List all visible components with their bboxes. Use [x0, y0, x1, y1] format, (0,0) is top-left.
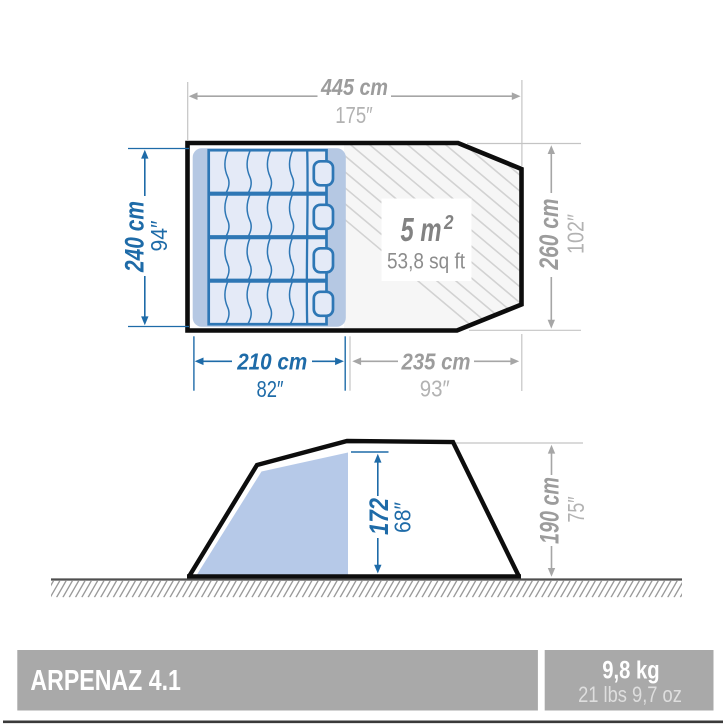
- svg-text:175″: 175″: [335, 102, 373, 128]
- svg-text:190 cm: 190 cm: [535, 477, 565, 544]
- svg-text:2: 2: [443, 212, 453, 234]
- svg-text:9,8 kg: 9,8 kg: [602, 657, 659, 685]
- svg-text:445 cm: 445 cm: [320, 74, 388, 100]
- svg-text:53,8 sq ft: 53,8 sq ft: [387, 249, 466, 274]
- svg-text:235 cm: 235 cm: [401, 348, 471, 374]
- svg-text:93″: 93″: [420, 375, 450, 401]
- svg-text:75″: 75″: [563, 497, 589, 523]
- svg-text:102″: 102″: [563, 214, 589, 254]
- svg-text:68″: 68″: [390, 502, 416, 533]
- svg-text:21 lbs 9,7 oz: 21 lbs 9,7 oz: [578, 682, 682, 707]
- svg-text:82″: 82″: [257, 376, 284, 402]
- svg-text:ARPENAZ 4.1: ARPENAZ 4.1: [30, 665, 181, 697]
- svg-text:5 m: 5 m: [401, 211, 442, 248]
- svg-text:210 cm: 210 cm: [236, 348, 307, 374]
- svg-text:260 cm: 260 cm: [534, 199, 564, 271]
- svg-text:240 cm: 240 cm: [120, 201, 150, 273]
- svg-text:94″: 94″: [146, 221, 172, 252]
